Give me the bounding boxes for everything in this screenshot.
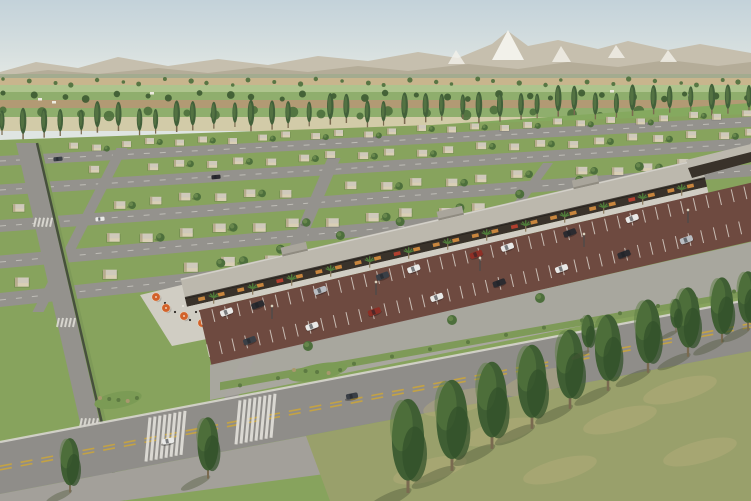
farm-tree (517, 80, 522, 85)
house (280, 132, 290, 139)
farm-tree (0, 90, 5, 95)
house (416, 125, 426, 132)
verge-shrub (542, 326, 546, 330)
person (174, 311, 176, 313)
farm-tree (548, 95, 553, 100)
farm-tree (231, 83, 235, 87)
rear-tree (515, 190, 524, 199)
house (298, 155, 310, 162)
farm-building (38, 98, 42, 101)
house (508, 143, 520, 150)
farm-building (52, 101, 56, 104)
house (174, 140, 184, 147)
verge-shrub (466, 340, 470, 344)
house (197, 136, 207, 143)
farm-tree (82, 95, 90, 103)
verge-shrub (428, 347, 432, 351)
rear-tree (635, 162, 644, 171)
house (357, 152, 369, 159)
house (605, 117, 615, 124)
farm-tree (317, 110, 326, 119)
farm-tree (165, 94, 172, 101)
house (102, 270, 118, 280)
farm-tree (197, 90, 203, 96)
verge-shrub (352, 362, 356, 366)
house (12, 204, 25, 212)
farm-tree (227, 91, 235, 99)
house (380, 182, 393, 190)
farm-tree (444, 93, 451, 100)
house (144, 138, 154, 145)
farm-building (610, 90, 614, 93)
house (575, 167, 588, 175)
farm-tree (340, 79, 344, 83)
house (446, 127, 456, 134)
farm-tree (414, 92, 419, 97)
house (147, 163, 159, 170)
house (510, 170, 523, 178)
farm-tree (204, 81, 208, 85)
house (149, 197, 162, 205)
poplar-tree (0, 110, 5, 135)
house (567, 141, 579, 148)
farm-tree (475, 77, 480, 82)
house (744, 129, 751, 136)
house (214, 193, 227, 201)
house (243, 189, 256, 197)
house (593, 138, 605, 145)
house (398, 208, 412, 217)
verge-shrub (732, 290, 736, 294)
farm-tree (527, 93, 533, 99)
farm-tree (68, 82, 73, 87)
verge-shrub (656, 304, 660, 308)
farm-tree (465, 96, 471, 102)
house (474, 175, 487, 183)
farm-tree (694, 83, 699, 88)
farm-tree (382, 83, 386, 87)
house (652, 135, 664, 142)
farm-tree (366, 81, 371, 86)
aerial-rendering (0, 0, 751, 501)
farm-tree (626, 76, 631, 81)
farm-tree (104, 111, 115, 122)
house (232, 157, 244, 164)
farm-tree (280, 96, 285, 101)
rear-tree (216, 259, 225, 268)
farm-tree (122, 80, 126, 84)
house (324, 151, 336, 158)
verge-shrub (390, 355, 394, 359)
house (173, 160, 185, 167)
house (121, 141, 131, 148)
house (14, 278, 30, 288)
farm-tree (27, 79, 32, 84)
house (106, 233, 120, 242)
farm-tree (721, 78, 725, 82)
house (469, 123, 479, 130)
house (685, 131, 697, 138)
house (257, 135, 267, 142)
house (445, 179, 458, 187)
farm-tree (382, 90, 388, 96)
house (178, 193, 191, 201)
house (611, 167, 624, 175)
farm-tree (298, 81, 303, 86)
farm-tree (183, 109, 190, 116)
person (189, 319, 191, 321)
house (363, 132, 373, 139)
farm-tree (578, 89, 585, 96)
farm-tree (314, 77, 318, 81)
house (522, 122, 532, 129)
house (183, 263, 199, 273)
farm-tree (144, 107, 153, 116)
house (416, 150, 428, 157)
poplar-tree (57, 109, 63, 136)
farm-tree (735, 79, 740, 84)
rendering-canvas (0, 0, 751, 501)
house (499, 125, 509, 132)
farm-tree (682, 91, 687, 96)
house (534, 140, 546, 147)
house (409, 178, 422, 186)
farm-tree (95, 78, 99, 82)
farm-tree (407, 77, 412, 82)
verge-shrub (238, 383, 242, 387)
farm-tree (146, 93, 151, 98)
house (386, 128, 396, 135)
farm-tree (189, 78, 194, 83)
house (333, 130, 343, 137)
house (383, 149, 395, 156)
farm-tree (299, 90, 306, 97)
house (252, 223, 266, 232)
person (182, 305, 184, 307)
farm-tree (356, 112, 363, 119)
house (711, 114, 721, 121)
farm-tree (491, 79, 495, 83)
farm-tree (653, 79, 657, 83)
rear-tree (396, 217, 405, 226)
farm-tree (248, 94, 254, 100)
farm-tree (31, 91, 38, 98)
house (113, 201, 126, 209)
house (206, 161, 218, 168)
farm-tree (1, 77, 5, 81)
farm-tree (559, 78, 563, 82)
farm-tree (434, 80, 438, 84)
farm-tree (543, 83, 547, 87)
house (741, 110, 751, 117)
poplar-tree (137, 108, 143, 135)
car (95, 217, 104, 222)
farm-tree (114, 91, 120, 97)
house (635, 118, 645, 125)
farm-tree (63, 94, 69, 100)
house (68, 143, 78, 150)
poplar-tree (41, 108, 47, 137)
farm-tree (163, 77, 167, 81)
house (552, 118, 562, 125)
farm-tree (450, 82, 454, 86)
house (179, 228, 193, 237)
house (91, 145, 101, 152)
house (279, 190, 292, 198)
house (139, 234, 153, 243)
house (325, 218, 339, 227)
poplar-tree (20, 108, 27, 140)
house (575, 120, 585, 127)
house (227, 138, 237, 145)
rear-tree (336, 231, 345, 240)
house (718, 132, 730, 139)
person (195, 311, 197, 313)
house (626, 134, 638, 141)
farm-tree (599, 92, 605, 98)
verge-tree (447, 315, 457, 325)
house (285, 219, 299, 228)
house (688, 112, 698, 119)
house (88, 166, 100, 173)
farm-tree (54, 81, 58, 85)
farm-tree (679, 81, 683, 85)
farm-tree (611, 82, 615, 86)
verge-shrub (276, 376, 280, 380)
farm-tree (272, 80, 276, 84)
verge-shrub (504, 333, 508, 337)
house (265, 159, 277, 166)
house (365, 213, 379, 222)
house (212, 224, 226, 233)
car (53, 157, 62, 162)
house (310, 133, 320, 140)
verge-tree (535, 293, 545, 303)
house (344, 182, 357, 190)
farm-tree (585, 80, 590, 85)
verge-tree (303, 341, 313, 351)
house (658, 115, 668, 122)
house (442, 146, 454, 153)
house (475, 142, 487, 149)
farm-tree (246, 78, 251, 83)
farm-building (150, 92, 154, 95)
verge-shrub (618, 311, 622, 315)
car (211, 175, 220, 180)
farm-tree (136, 82, 141, 87)
farm-tree (661, 96, 667, 102)
